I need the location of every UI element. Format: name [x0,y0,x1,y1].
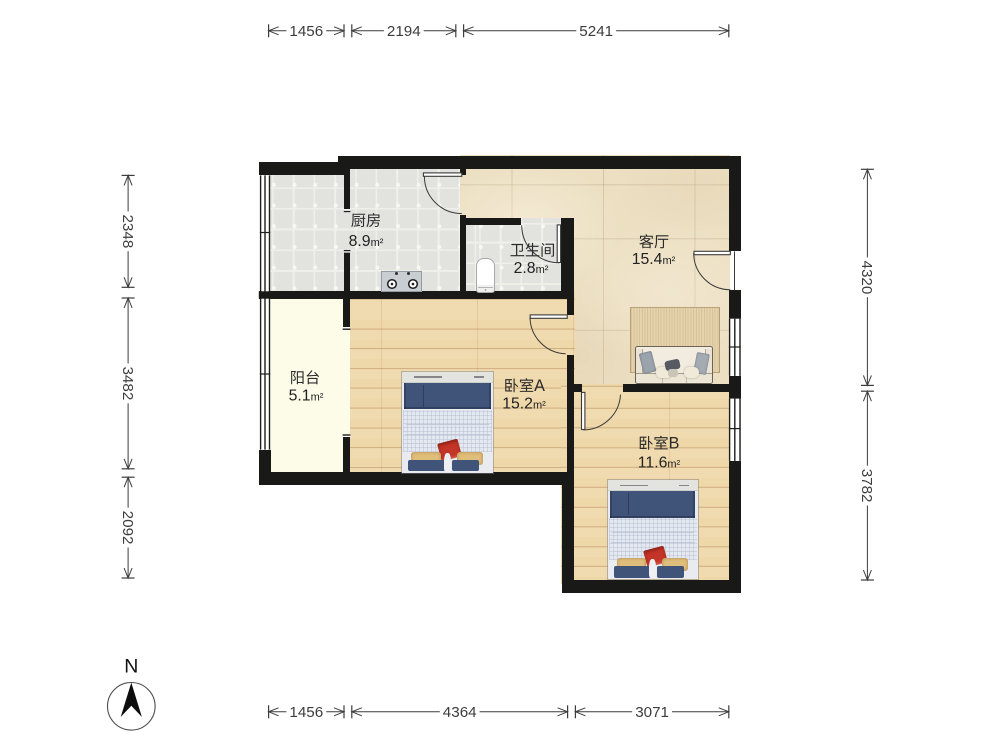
svg-text:5.1m²: 5.1m² [289,388,324,405]
svg-text:11.6m²: 11.6m² [638,454,681,471]
svg-text:15.2m²: 15.2m² [502,395,546,412]
svg-text:B: B [669,435,680,453]
svg-text:5241: 5241 [579,23,613,40]
svg-text:3071: 3071 [635,704,669,721]
svg-text:4320: 4320 [858,261,875,295]
svg-text:2.8m²: 2.8m² [514,260,549,277]
svg-text:2092: 2092 [119,511,136,545]
svg-text:8.9m²: 8.9m² [349,233,384,250]
svg-text:3782: 3782 [858,469,875,503]
svg-text:3482: 3482 [119,367,136,401]
svg-text:A: A [534,377,545,395]
svg-text:2194: 2194 [387,23,421,40]
svg-text:1456: 1456 [289,704,323,721]
svg-text:4364: 4364 [443,704,477,721]
svg-text:15.4m²: 15.4m² [632,251,676,268]
svg-text:2348: 2348 [119,215,136,249]
svg-text:N: N [124,656,138,678]
svg-text:1456: 1456 [289,23,323,40]
